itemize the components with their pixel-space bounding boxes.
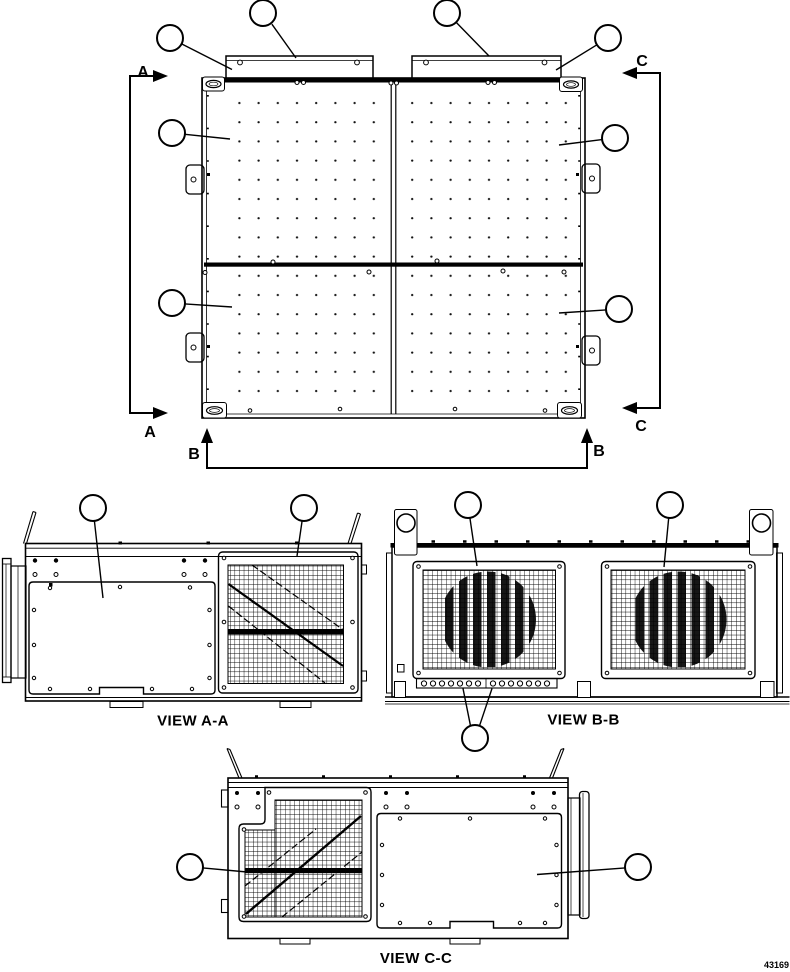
view-c-c: VIEW C-C: [177, 749, 651, 968]
callout-balloon: [177, 854, 247, 880]
fan-grille-right: [602, 562, 756, 679]
section-line-a: A A: [130, 64, 168, 441]
access-panel: [29, 582, 215, 694]
top-strip-left: [226, 56, 373, 79]
rivet-field-bottom-left: [222, 274, 388, 408]
section-label-a-bottom: A: [144, 424, 156, 441]
lifting-eye: [203, 403, 227, 419]
callout-balloon: [159, 120, 230, 146]
view-c-c-label: VIEW C-C: [380, 950, 452, 967]
corner-braces: [227, 749, 564, 779]
right-flange: [568, 792, 589, 919]
view-a-a-label: VIEW A-A: [157, 713, 229, 730]
top-strip-right: [412, 56, 561, 79]
section-label-b-right: B: [593, 443, 605, 460]
lifting-eye: [558, 403, 582, 419]
section-line-c: C C: [622, 53, 660, 435]
rivet-field-top-right: [400, 92, 574, 258]
lifting-post-right: [750, 510, 774, 556]
section-label-b-left: B: [188, 446, 200, 463]
callout-balloon: [291, 495, 317, 556]
section-label-a-top: A: [137, 64, 149, 81]
section-line-b: B B: [188, 428, 605, 468]
callout-balloon: [250, 0, 296, 58]
callout-balloon: [159, 290, 232, 316]
access-panel: [377, 814, 562, 929]
callout-balloon: [462, 689, 492, 752]
callout-balloon: [537, 854, 651, 880]
cabinet-top-panel: [202, 78, 585, 418]
technical-diagram: A A C C B B: [0, 0, 790, 972]
lifting-eye: [203, 77, 225, 91]
view-b-b: VIEW B-B: [385, 492, 790, 751]
view-a-a: VIEW A-A: [3, 495, 367, 730]
lifting-eye: [560, 77, 583, 92]
section-label-c-bottom: C: [635, 418, 647, 435]
lifting-post-left: [395, 510, 418, 556]
base-skid: [385, 697, 790, 704]
drain-holes: [417, 679, 558, 689]
left-flange: [3, 559, 27, 683]
callout-balloon: [455, 492, 481, 566]
fan-grille-left: [413, 562, 565, 679]
view-b-b-label: VIEW B-B: [547, 712, 619, 729]
callout-balloon: [157, 25, 232, 70]
mesh-grille: [219, 552, 359, 693]
figure-canvas: A A C C B B: [0, 0, 790, 972]
figure-number: 43169: [764, 960, 789, 970]
center-joint-bar: [204, 263, 583, 267]
rivet-field-top-left: [222, 92, 388, 258]
top-view: A A C C B B: [130, 0, 660, 468]
callout-balloon: [556, 25, 621, 70]
rivet-field-bottom-right: [400, 274, 574, 408]
callout-balloon: [657, 492, 683, 567]
callout-balloon: [434, 0, 489, 56]
section-label-c-top: C: [636, 53, 648, 70]
